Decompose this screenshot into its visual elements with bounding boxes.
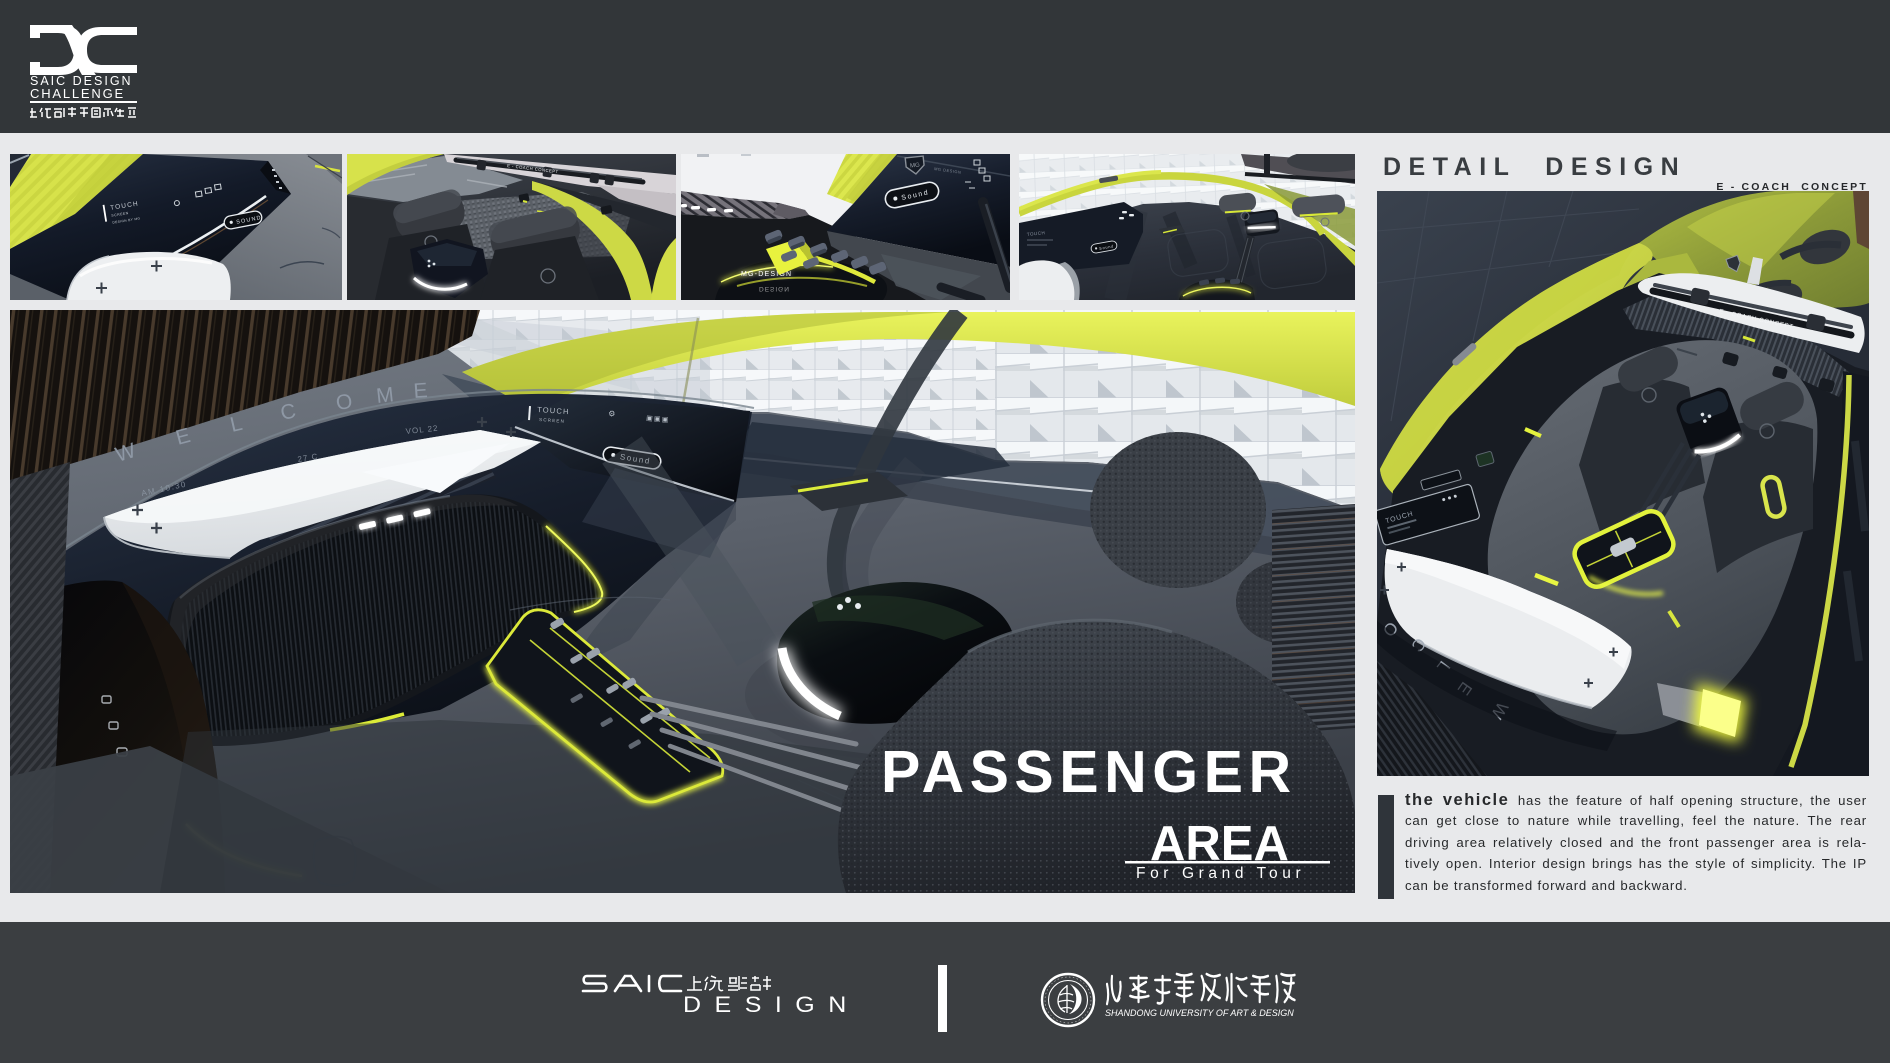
svg-text:SHANDONG UNIVERSITY OF ART & D: SHANDONG UNIVERSITY OF ART & DESIGN [1105,1008,1294,1018]
svg-text:⚙: ⚙ [608,409,617,419]
svg-text:C: C [279,398,304,425]
svg-text:CHALLENGE: CHALLENGE [30,86,125,101]
svg-text:PASSENGER: PASSENGER [881,739,1297,805]
svg-text:M: M [375,383,401,408]
svg-text:DESIGN: DESIGN [683,992,860,1016]
svg-text:O: O [334,389,359,415]
svg-text:DESIGN: DESIGN [759,285,790,292]
svg-text:E: E [413,379,435,403]
svg-text:For Grand Tour: For Grand Tour [1136,865,1305,882]
svg-text:MG: MG [910,162,921,169]
